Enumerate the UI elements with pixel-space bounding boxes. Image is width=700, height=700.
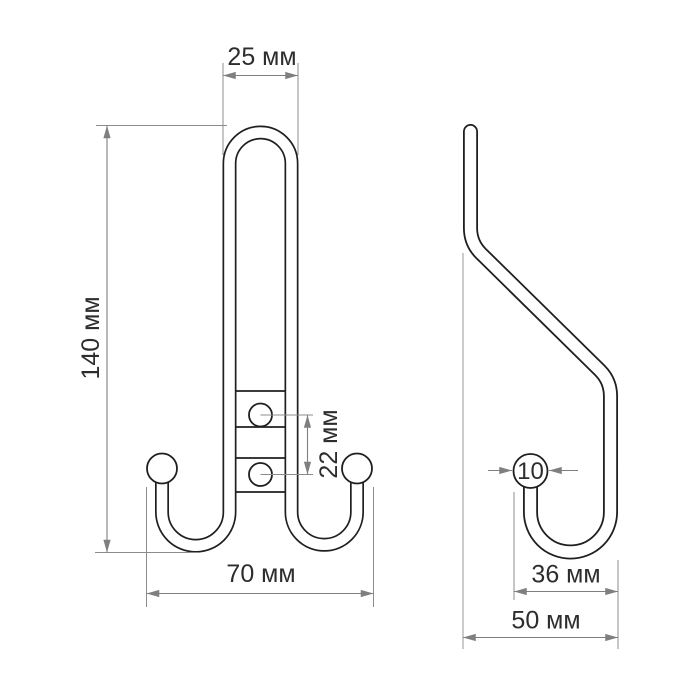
dimension-label-25mm: 25 мм — [227, 43, 296, 71]
side-hook-wire-fill — [471, 132, 611, 553]
drawing-canvas: 25 мм 140 мм 22 мм 70 мм 10 36 мм 50 мм — [0, 0, 700, 700]
side-hook-wire-outline — [471, 132, 611, 553]
dimension-label-22mm: 22 мм — [315, 409, 343, 478]
front-view-drawing — [147, 132, 372, 545]
mounting-plate — [235, 391, 286, 492]
dimension-label-50mm: 50 мм — [511, 607, 580, 635]
hook-dimension-drawing: 25 мм 140 мм 22 мм 70 мм 10 36 мм 50 мм — [0, 0, 700, 700]
dimension-hole-spacing: 22 мм — [261, 409, 344, 478]
dimension-label-10: 10 — [517, 458, 544, 485]
dimension-label-70mm: 70 мм — [226, 560, 295, 588]
ball-tip-right — [342, 454, 372, 484]
dimension-overall-height: 140 мм — [77, 126, 227, 553]
dimension-label-140mm: 140 мм — [77, 296, 105, 379]
dimension-label-36mm: 36 мм — [531, 561, 600, 589]
ball-tip-left — [147, 454, 177, 484]
dimension-overall-depth: 50 мм — [463, 607, 618, 638]
dimension-ball-diameter: 10 — [488, 458, 578, 485]
